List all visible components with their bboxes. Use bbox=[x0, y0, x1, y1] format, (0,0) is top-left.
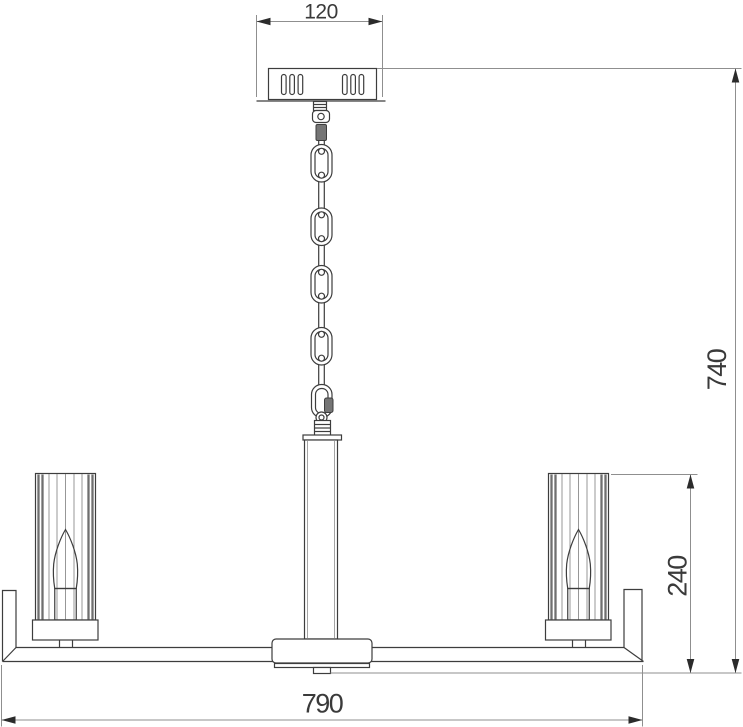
dimension-overall-width: 790 bbox=[2, 665, 643, 727]
center-column bbox=[303, 421, 342, 640]
canopy-threaded-nipple bbox=[314, 102, 327, 111]
right-socket bbox=[546, 620, 612, 640]
arrowhead-down bbox=[732, 659, 740, 673]
chandelier-dimension-drawing: 120 740 240 790 bbox=[0, 0, 743, 727]
arrowhead-left bbox=[2, 716, 16, 724]
column-threaded-collar bbox=[315, 421, 331, 436]
shade-height-label: 240 bbox=[663, 556, 693, 597]
left-stem bbox=[60, 640, 73, 648]
carabiner-screw-sleeve bbox=[325, 398, 334, 413]
left-socket bbox=[33, 620, 99, 640]
chain-coupling bbox=[316, 125, 327, 141]
center-hub bbox=[272, 639, 372, 674]
right-stem bbox=[573, 640, 586, 648]
hub-finial-tab bbox=[314, 668, 331, 674]
hub-body bbox=[272, 639, 372, 663]
arrowhead-left bbox=[257, 18, 271, 26]
arrowhead-down bbox=[687, 659, 695, 673]
arrowhead-up bbox=[687, 475, 695, 489]
left-lamp bbox=[33, 474, 99, 648]
overall-width-label: 790 bbox=[302, 689, 343, 719]
chain-oval-links bbox=[311, 145, 332, 366]
overall-height-label: 740 bbox=[702, 349, 732, 390]
arrowhead-right bbox=[629, 716, 643, 724]
ceiling-canopy bbox=[257, 69, 386, 111]
column-tube bbox=[305, 440, 338, 639]
technical-drawing-canvas: 120 740 240 790 bbox=[0, 0, 743, 727]
arm-end-right bbox=[624, 590, 644, 662]
canopy-width-label: 120 bbox=[304, 1, 338, 24]
hanging-chain bbox=[311, 111, 333, 424]
right-lamp bbox=[546, 474, 612, 648]
column-top-cap bbox=[303, 435, 342, 440]
arrowhead-right bbox=[369, 18, 383, 26]
chain-hook bbox=[313, 111, 330, 123]
arrowhead-up bbox=[732, 69, 740, 83]
arm-end-left bbox=[3, 591, 17, 662]
carabiner-link bbox=[312, 385, 334, 424]
